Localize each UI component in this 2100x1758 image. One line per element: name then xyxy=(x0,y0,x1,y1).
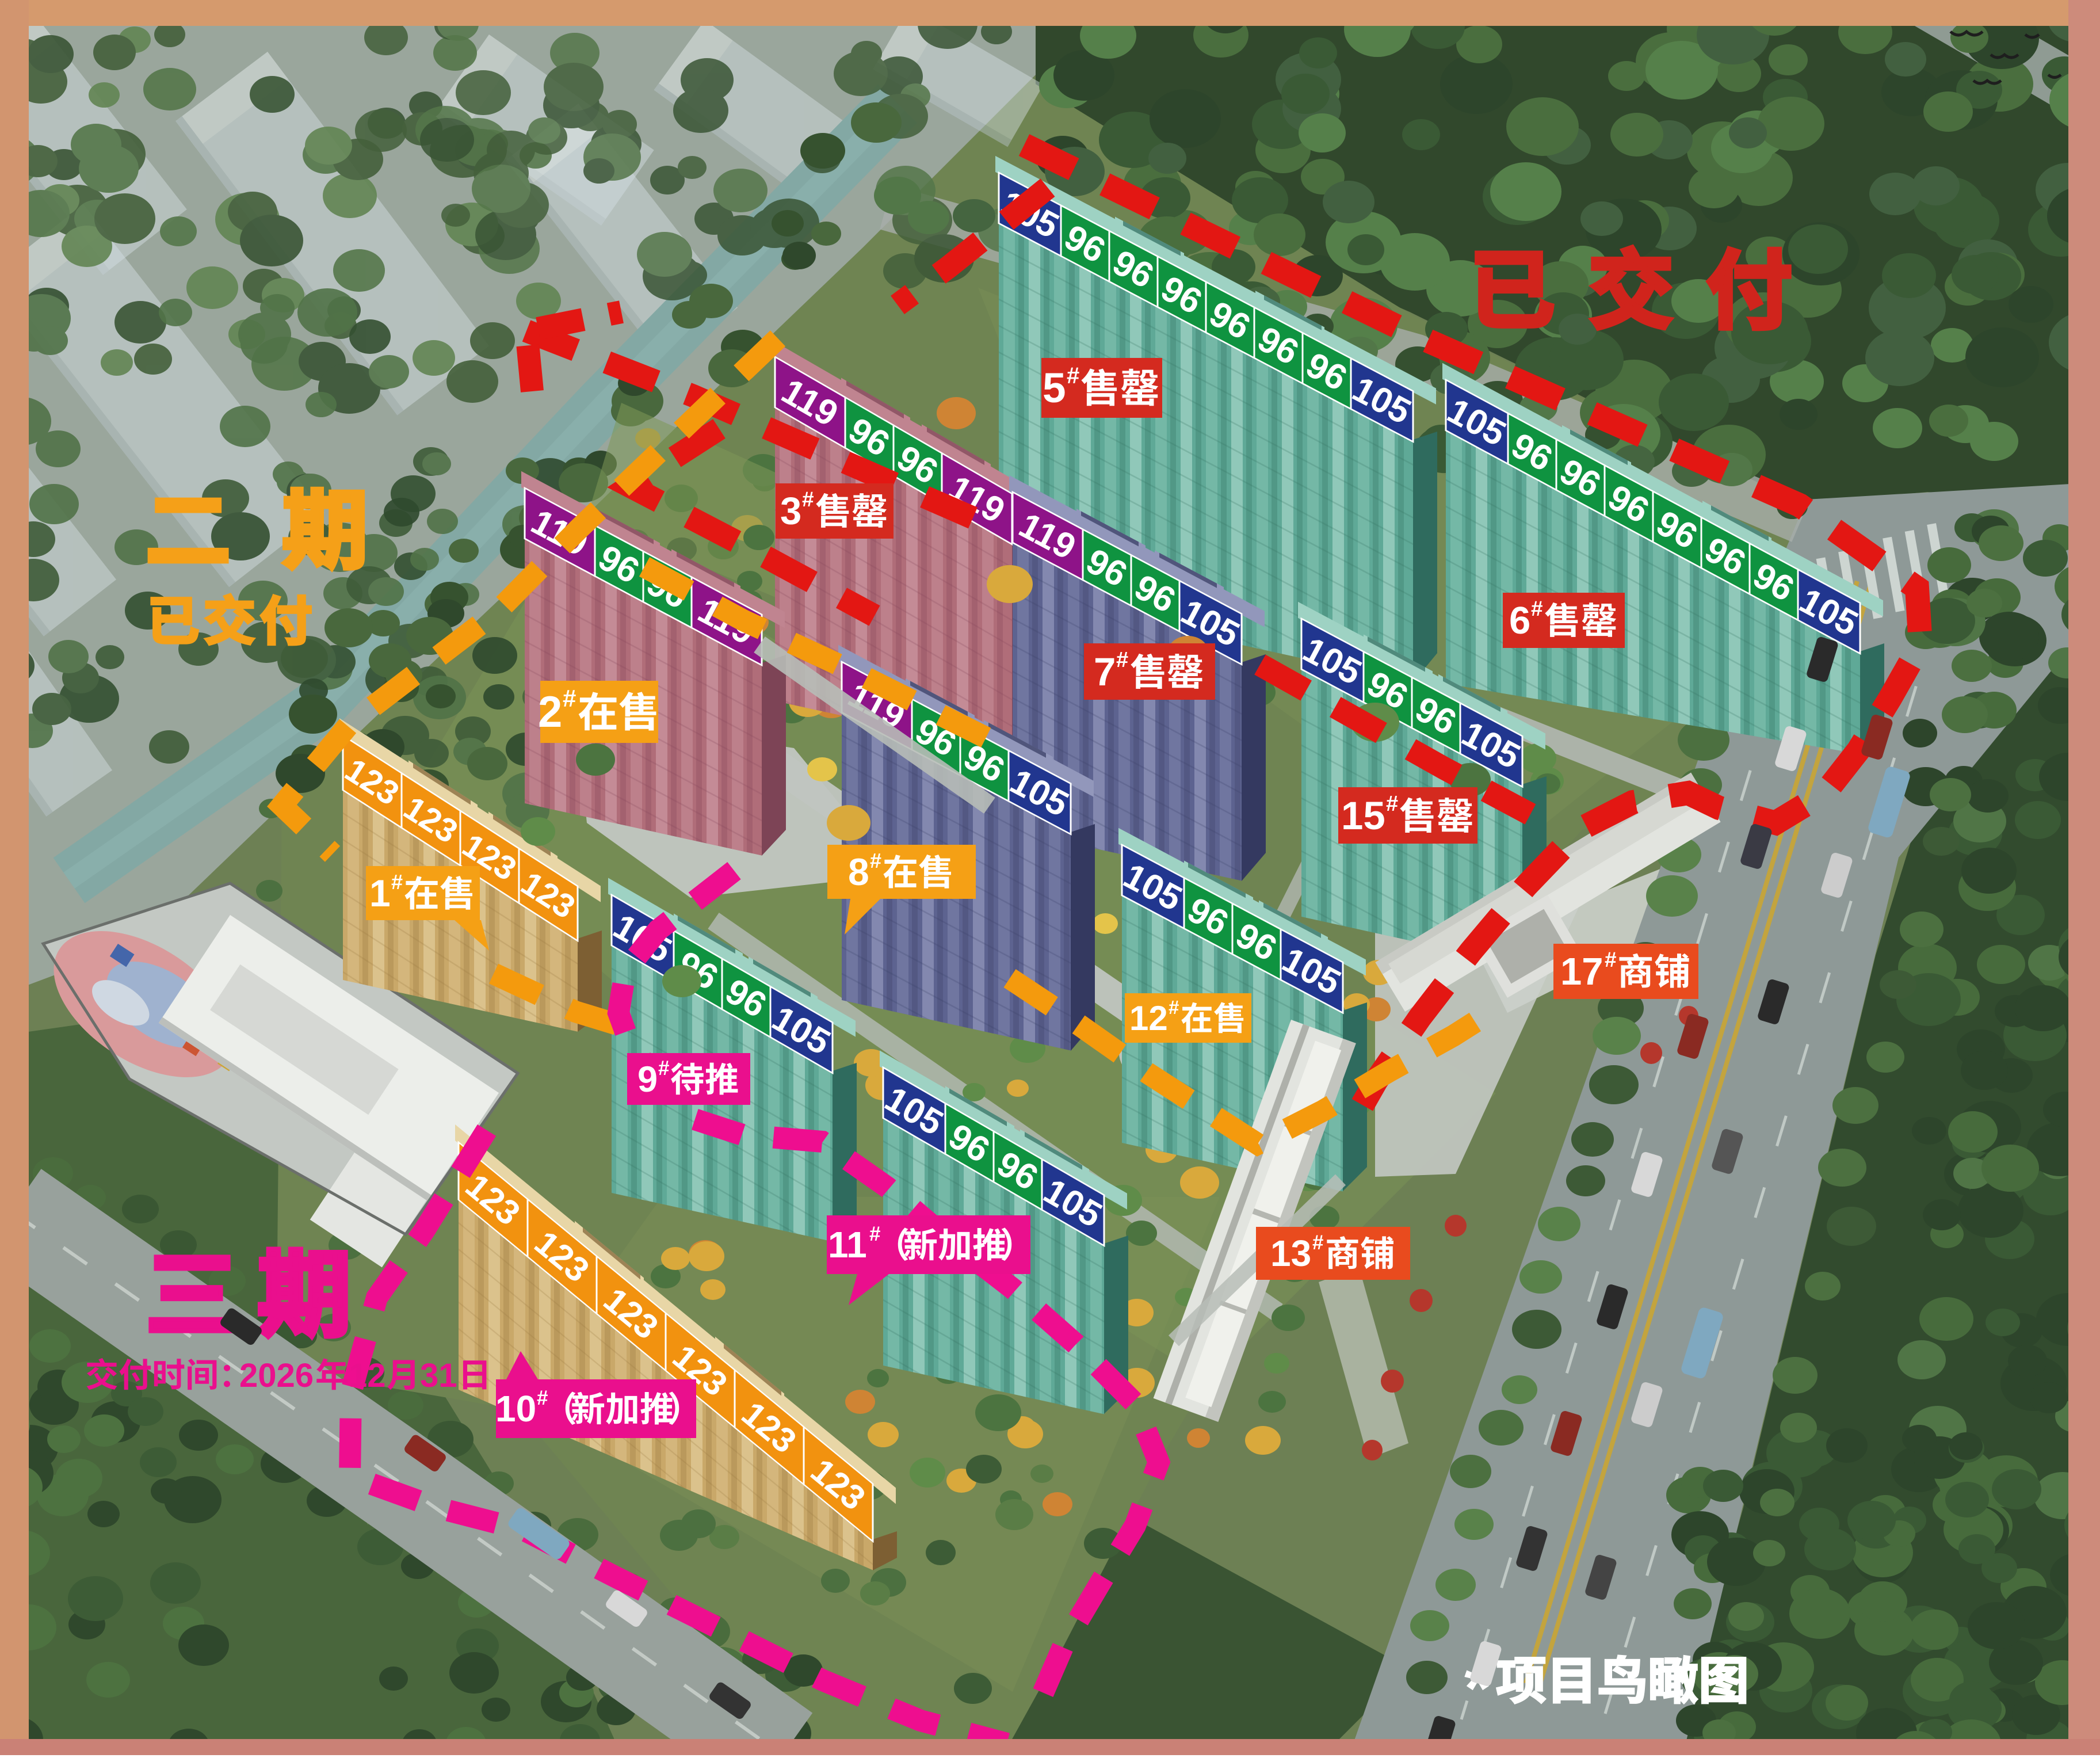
svg-text:#: # xyxy=(391,870,403,894)
svg-text:31: 31 xyxy=(420,1357,457,1394)
svg-text:12: 12 xyxy=(349,1357,386,1394)
svg-text:11: 11 xyxy=(828,1224,867,1265)
svg-text:6: 6 xyxy=(1509,599,1530,642)
svg-text:#: # xyxy=(870,849,881,872)
svg-text:#: # xyxy=(1386,792,1398,816)
svg-text:#: # xyxy=(1067,363,1079,388)
svg-text:7: 7 xyxy=(1094,650,1116,694)
svg-text:9: 9 xyxy=(637,1059,658,1100)
svg-text:#: # xyxy=(1531,597,1543,620)
svg-text:3: 3 xyxy=(780,490,801,533)
svg-text:15: 15 xyxy=(1341,794,1385,838)
svg-text:5: 5 xyxy=(1043,365,1066,411)
svg-text:13: 13 xyxy=(1270,1233,1311,1274)
svg-text:#: # xyxy=(1605,948,1617,971)
svg-text:10: 10 xyxy=(495,1388,536,1429)
svg-text:1: 1 xyxy=(369,872,391,914)
svg-text:2: 2 xyxy=(538,688,562,737)
svg-text:#: # xyxy=(1312,1231,1323,1254)
svg-text:8: 8 xyxy=(848,851,869,893)
svg-text:#: # xyxy=(1116,648,1128,672)
svg-text:#: # xyxy=(537,1387,548,1409)
svg-text:2026: 2026 xyxy=(239,1357,314,1394)
svg-text:12: 12 xyxy=(1129,999,1168,1038)
svg-text:#: # xyxy=(802,487,814,511)
svg-text:#: # xyxy=(869,1223,880,1245)
svg-text:#: # xyxy=(1169,997,1179,1018)
svg-text:17: 17 xyxy=(1560,950,1603,993)
svg-text:#: # xyxy=(658,1057,669,1080)
svg-text:#: # xyxy=(563,685,576,712)
